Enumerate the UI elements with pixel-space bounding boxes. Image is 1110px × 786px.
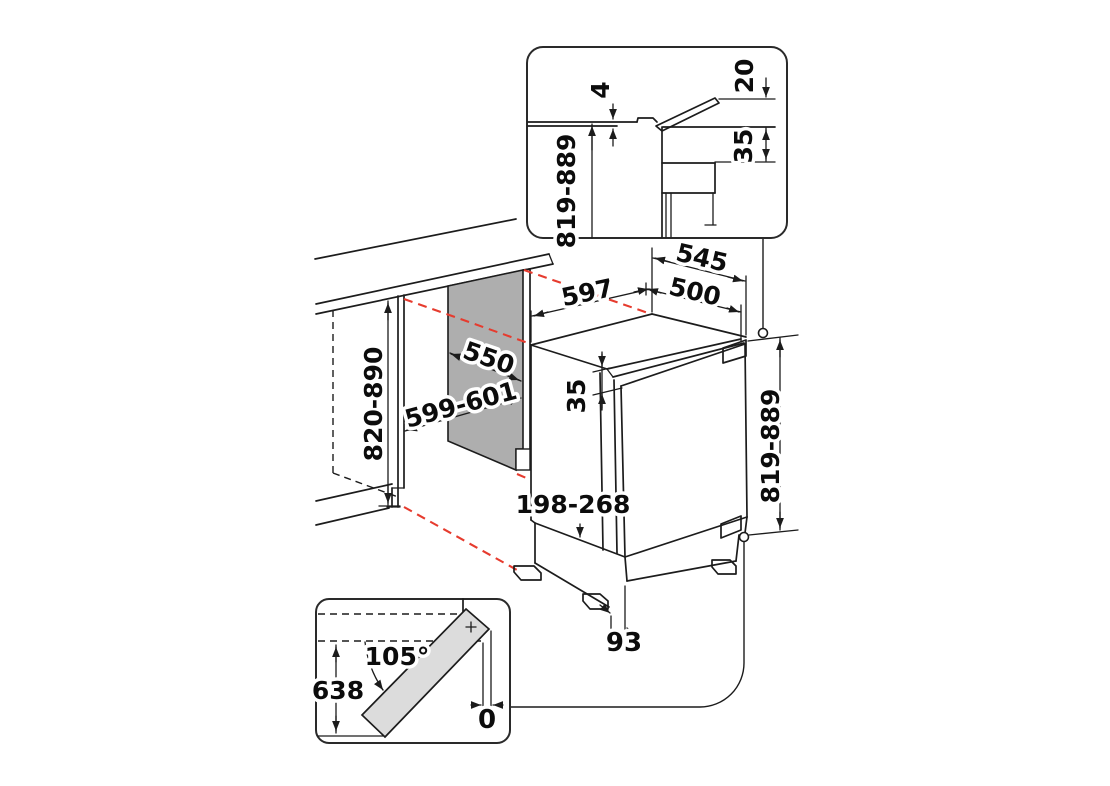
refrigerator [514,314,747,609]
foot-right [712,560,736,574]
dim-edge-clearance: 20 [730,59,759,94]
dim-opening-angle: 105° [365,642,430,671]
dim-plinth-height: 198-268 [516,490,631,519]
dim-niche-height: 820-890 [359,347,388,462]
dim-top-recess: 35 [729,129,758,164]
dim-height: 819-889 [756,389,785,504]
dim-depth-body: 500 [666,272,723,312]
diagram-canvas: 545 500 597 550 599-601 820-890 35 819-8… [0,0,1110,786]
foot-front [583,594,608,609]
appliance-dimension-diagram: 545 500 597 550 599-601 820-890 35 819-8… [0,0,1110,786]
dim-door-top-recess: 35 [562,379,591,414]
dim-top-gap: 4 [586,81,615,98]
dim-width: 597 [559,273,616,312]
top-detail-reference-dot [759,329,768,338]
dim-foot-setback: 93 [606,628,642,658]
main-dimensions: 545 500 597 550 599-601 820-890 35 819-8… [359,238,798,658]
door-swing-inset: 105° 638 0 [312,599,510,743]
top-detail-inset: 4 20 35 819-889 [527,47,787,248]
foot-back-left [514,566,541,580]
dim-depth-total: 545 [673,238,730,278]
dim-swing-depth: 638 [312,676,364,705]
dim-side-clearance: 0 [478,705,496,735]
door-detail-reference-dot [740,533,749,542]
dim-build-height: 819-889 [552,134,581,249]
